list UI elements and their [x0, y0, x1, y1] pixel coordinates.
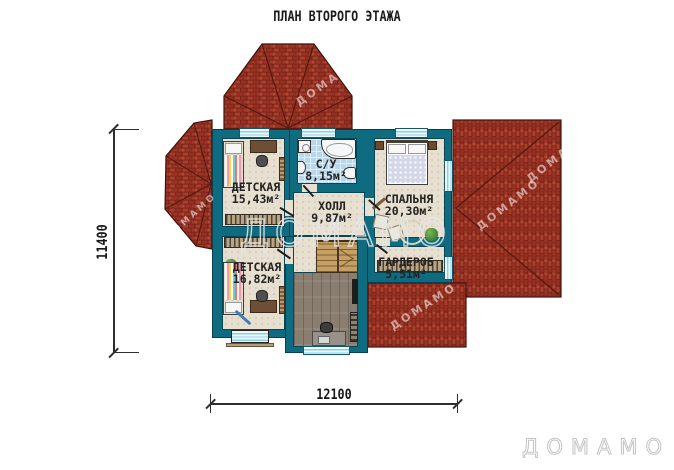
dimension-line-horizontal	[210, 403, 458, 405]
page-title: ПЛАН ВТОРОГО ЭТАЖА	[54, 9, 620, 25]
dimension-label-vertical: 11400	[95, 217, 111, 267]
window-kids1-top	[239, 128, 270, 138]
room-label-kids2: ДЕТСКАЯ 16,82м²	[207, 261, 307, 285]
nightstand-right	[428, 141, 437, 150]
room-label-wardrobe: ГАРДЕРОБ 5,51м²	[356, 256, 456, 280]
room-label-bedroom: СПАЛЬНЯ 20,30м²	[359, 193, 459, 217]
brand-logo: ДОМАМО	[522, 435, 670, 459]
nightstand-left	[375, 141, 384, 150]
room-label-bathroom: С/У 8,15м²	[276, 158, 376, 182]
window-bedroom-top	[395, 128, 428, 138]
dimension-label-horizontal: 12100	[296, 387, 372, 403]
chair-symbol-stair	[320, 322, 333, 333]
bookshelf-symbol-stair	[350, 312, 358, 342]
window-stair-bottom	[303, 346, 350, 355]
roof-top-turret	[224, 44, 352, 129]
dimension-line-vertical	[113, 129, 115, 353]
floor-plan: ПЛАН ВТОРОГО ЭТАЖА	[0, 0, 674, 470]
bay-window-sill	[226, 343, 274, 347]
room-area: 5,51м²	[356, 268, 456, 280]
washer-symbol	[298, 140, 311, 153]
dimension-ext-bottom	[113, 352, 139, 353]
room-area: 8,15м²	[276, 170, 376, 182]
room-area: 20,30м²	[359, 205, 459, 217]
tv-panel-symbol	[352, 279, 358, 304]
chair-symbol-kids1	[256, 155, 268, 167]
chair-symbol-kids2	[256, 290, 268, 302]
shelf-symbol-kids2	[279, 286, 285, 314]
desk-symbol-kids1	[250, 140, 277, 153]
window-bathroom-top	[301, 128, 336, 138]
window-bedroom-right	[444, 160, 453, 192]
pillow	[225, 143, 242, 154]
desk-symbol-stair	[312, 331, 346, 346]
double-bed-symbol	[386, 140, 428, 185]
bay-window-kids2	[231, 330, 269, 343]
room-area: 16,82м²	[207, 273, 307, 285]
dimension-ext-top	[113, 129, 139, 130]
